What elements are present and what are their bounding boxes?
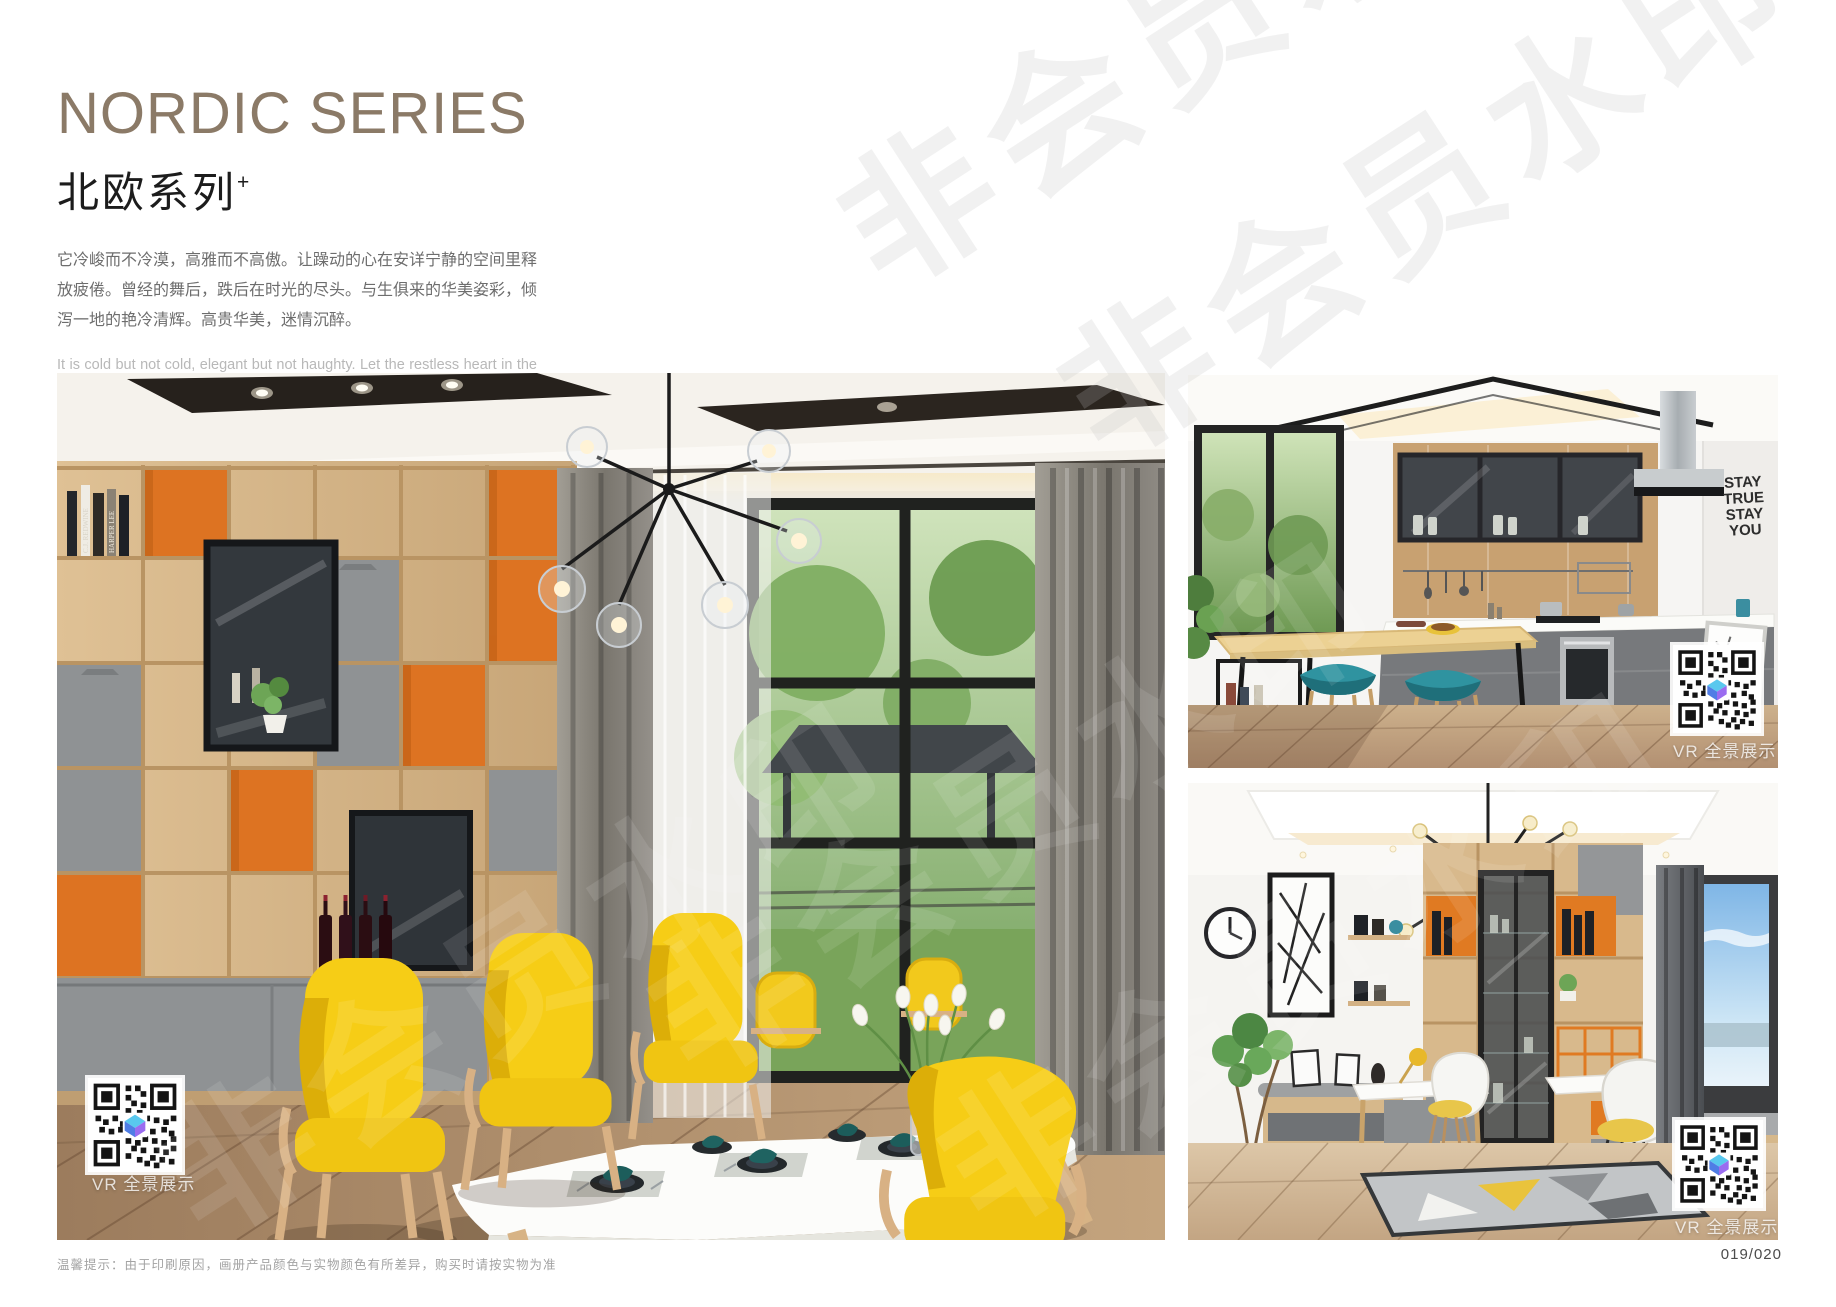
watermark-text: 非会员水印 xyxy=(791,0,1614,329)
catalog-page: NORDIC SERIES 北欧系列+ 它冷峻而不冷漠，高雅而不高傲。让躁动的心… xyxy=(0,0,1836,1307)
series-subtitle-cn: 北欧系列+ xyxy=(57,159,537,220)
vr-qr-code xyxy=(1673,645,1761,733)
vr-qr-code xyxy=(1675,1120,1763,1208)
cooktop xyxy=(1536,616,1600,623)
abstract-art-frame xyxy=(1270,875,1332,1015)
kitchen-photo: STAY TRUE STAY YOU VR 全景展示 xyxy=(1188,375,1778,768)
dining-room-photo: C.J. REDWINE HARPER LEE xyxy=(57,373,1165,1240)
shelf-books: C.J. REDWINE HARPER LEE xyxy=(67,485,129,556)
countertop-appliance xyxy=(1736,599,1750,617)
study-photo: VR 全景展示 xyxy=(1188,783,1778,1240)
wall-clock xyxy=(1206,909,1254,957)
wall-decal-text: STAY TRUE STAY YOU xyxy=(1722,473,1766,540)
built-in-oven xyxy=(1560,637,1614,705)
glass-display-cabinet xyxy=(1481,873,1551,1141)
print-disclaimer: 温馨提示：由于印刷原因，画册产品颜色与实物颜色有所差异，购买时请按实物为准 xyxy=(57,1254,557,1273)
book-spine-title: C.J. REDWINE xyxy=(82,508,90,553)
vr-qr-code xyxy=(88,1078,182,1172)
page-number: 019/020 xyxy=(1700,1246,1782,1263)
book-spine-title: HARPER LEE xyxy=(108,511,116,553)
plus-mark: + xyxy=(237,171,249,194)
intro-paragraph-cn: 它冷峻而不冷漠，高雅而不高傲。让躁动的心在安详宁静的空间里释放疲倦。曾经的舞后，… xyxy=(57,246,537,336)
vr-panorama-label: VR 全景展示 xyxy=(1675,1213,1778,1238)
series-title: NORDIC SERIES xyxy=(57,84,537,145)
svg-text:YOU: YOU xyxy=(1729,521,1762,540)
vr-panorama-label: VR 全景展示 xyxy=(1673,737,1776,762)
vr-panorama-label: VR 全景展示 xyxy=(92,1170,195,1195)
upper-glass-cabinet xyxy=(1400,455,1640,540)
